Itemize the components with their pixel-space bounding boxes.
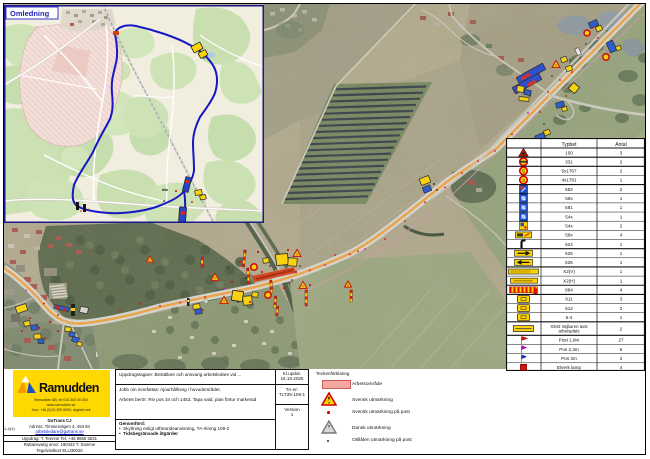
svg-text:1: 1 <box>620 178 623 183</box>
svg-text:611: 611 <box>565 297 573 302</box>
svg-text:27: 27 <box>618 338 624 343</box>
svg-text:581: 581 <box>565 205 573 210</box>
svg-text:Elverk lamp: Elverk lamp <box>557 365 581 370</box>
svg-text:1: 1 <box>620 205 623 210</box>
svg-text:1: 1 <box>620 251 623 256</box>
svg-text:X2(H): X2(H) <box>563 278 575 283</box>
svg-text:1: 1 <box>620 260 623 265</box>
svg-text:Typbet: Typbet <box>561 142 577 148</box>
svg-text:1: 1 <box>620 315 623 320</box>
svg-text:2: 2 <box>620 169 623 174</box>
svg-text:Pos 3m: Pos 3m <box>561 356 577 361</box>
svg-text:Ramudden AB, tel 010-303 30 30: Ramudden AB, tel 010-303 30 300 <box>34 398 88 402</box>
svg-text:dla: dla <box>162 187 169 192</box>
svg-text:2: 2 <box>620 356 623 361</box>
svg-text:612: 612 <box>565 306 573 311</box>
svg-text:331: 331 <box>565 159 573 164</box>
svg-text:Jour: +46 (0)10-209 5000, dygn: Jour: +46 (0)10-209 5000, dygnet runt <box>31 408 90 412</box>
svg-text:624: 624 <box>565 242 573 247</box>
svg-text:1: 1 <box>620 242 623 247</box>
svg-text:2: 2 <box>620 159 623 164</box>
svg-text:4: 4 <box>620 233 623 238</box>
svg-text:1: 1 <box>620 278 623 283</box>
svg-text:2: 2 <box>620 223 623 228</box>
svg-text:150: 150 <box>565 150 573 155</box>
svg-text:2: 2 <box>620 326 623 331</box>
svg-text:Post 1,8m: Post 1,8m <box>559 338 580 343</box>
svg-text:884: 884 <box>565 288 573 293</box>
svg-text:1: 1 <box>620 196 623 201</box>
svg-text:www.ramudden.se: www.ramudden.se <box>47 403 76 407</box>
svg-text:54x: 54x <box>565 214 573 219</box>
svg-text:Pos 2,3m: Pos 2,3m <box>559 347 579 352</box>
svg-text:1: 1 <box>620 214 623 219</box>
svg-text:Omledning: Omledning <box>10 9 50 18</box>
svg-text:6-4: 6-4 <box>566 315 573 320</box>
svg-text:4: 4 <box>620 365 623 370</box>
svg-text:arbetsplats: arbetsplats <box>558 329 579 334</box>
svg-text:Antal: Antal <box>615 142 626 148</box>
svg-text:5x1767: 5x1767 <box>561 169 577 174</box>
svg-text:552: 552 <box>565 187 573 192</box>
svg-text:58x: 58x <box>565 196 573 201</box>
svg-text:54x: 54x <box>565 223 573 228</box>
svg-text:5: 5 <box>620 347 623 352</box>
svg-text:4x1781: 4x1781 <box>561 178 577 183</box>
svg-text:X2(V): X2(V) <box>563 269 575 274</box>
svg-text:625: 625 <box>565 251 573 256</box>
svg-text:Ramudden: Ramudden <box>39 381 99 395</box>
svg-text:58x: 58x <box>565 233 573 238</box>
svg-text:3: 3 <box>620 297 623 302</box>
svg-text:1: 1 <box>620 269 623 274</box>
svg-text:3: 3 <box>620 150 623 155</box>
svg-text:4: 4 <box>620 288 623 293</box>
svg-text:2: 2 <box>620 306 623 311</box>
svg-text:626: 626 <box>565 260 573 265</box>
svg-text:2: 2 <box>620 187 623 192</box>
